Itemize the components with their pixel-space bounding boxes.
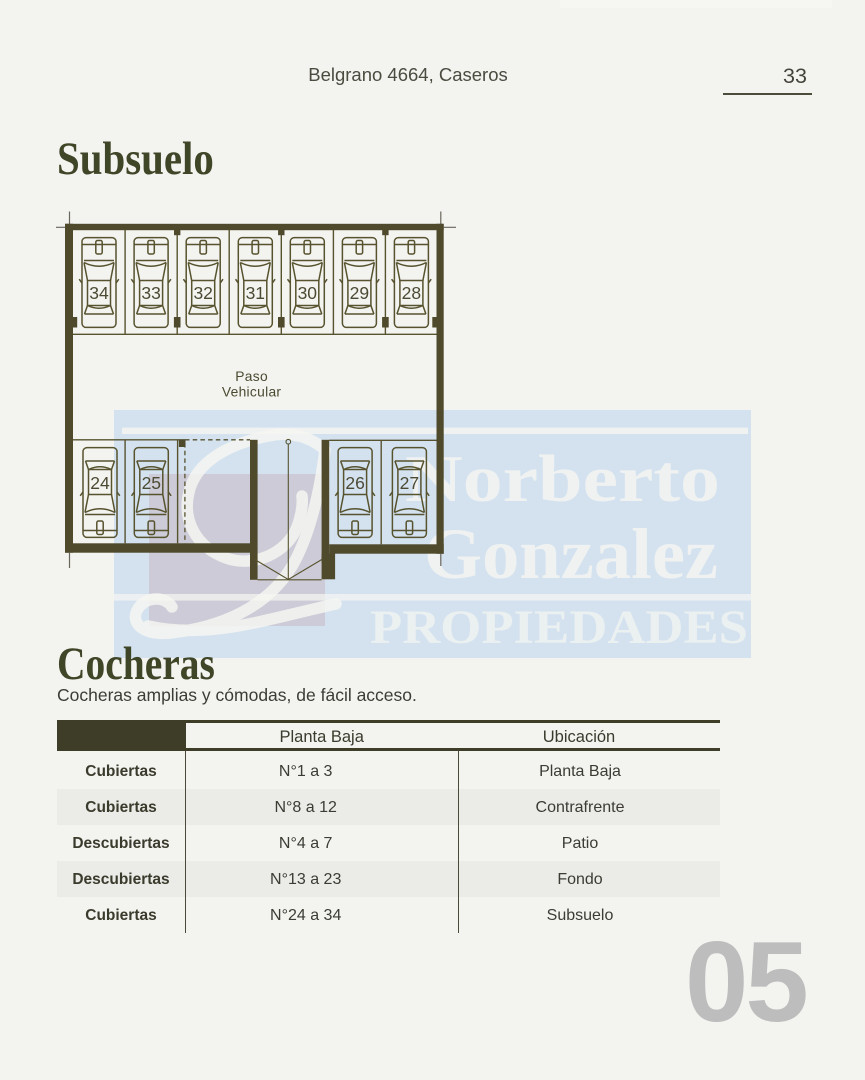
svg-text:33: 33	[141, 283, 160, 303]
svg-text:Paso: Paso	[235, 369, 268, 384]
svg-text:29: 29	[350, 283, 369, 303]
svg-text:24: 24	[90, 473, 110, 493]
svg-text:34: 34	[89, 283, 109, 303]
svg-text:26: 26	[345, 473, 364, 493]
svg-text:Vehicular: Vehicular	[222, 385, 282, 400]
svg-text:25: 25	[142, 473, 161, 493]
svg-text:28: 28	[402, 283, 421, 303]
svg-text:30: 30	[298, 283, 318, 303]
svg-text:32: 32	[193, 283, 212, 303]
svg-text:31: 31	[246, 283, 265, 303]
svg-text:27: 27	[400, 473, 419, 493]
